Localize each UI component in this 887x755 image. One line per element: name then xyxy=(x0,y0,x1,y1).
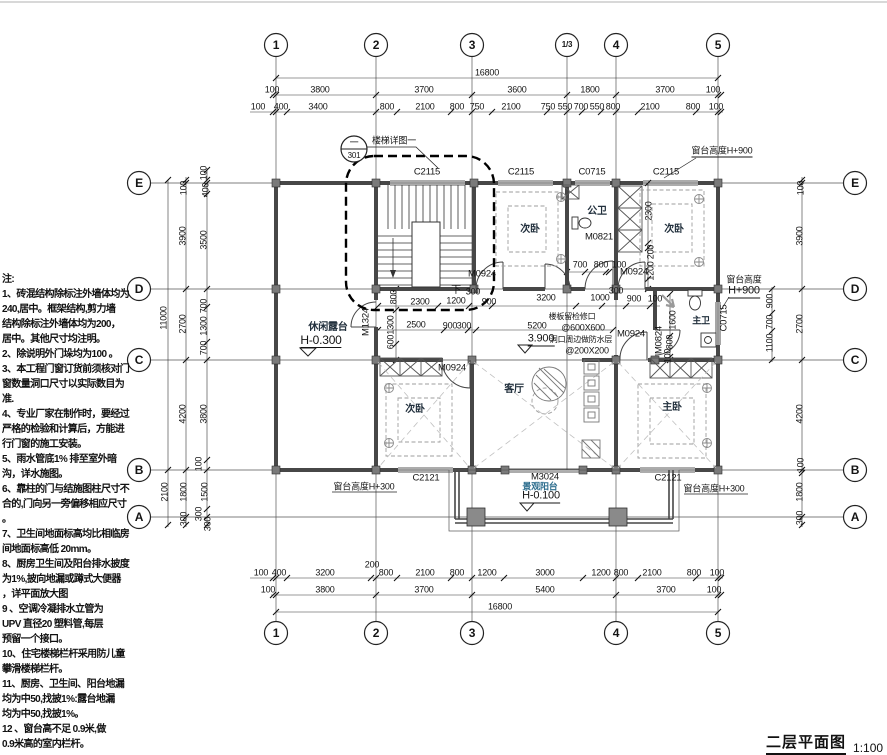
drawing-title-block: 二层平面图1:100 xyxy=(766,731,883,755)
walls xyxy=(274,181,720,472)
balcony xyxy=(449,470,679,531)
note-line: 严格的检验和计算后，方能进 xyxy=(2,422,162,437)
note-line: 5、雨水管底1% 排至室外暗 xyxy=(2,452,162,467)
note-line: 准. xyxy=(2,392,162,407)
note-line: 6、靠柱的门与结施图柱尺寸不 xyxy=(2,482,162,497)
note-line: 为1%,披向地漏或蹲式大便器 xyxy=(2,572,162,587)
drawing-scale: 1:100 xyxy=(853,741,883,755)
note-line: 均为中50,找披1%。 xyxy=(2,707,162,722)
note-line: 预留一个接口。 xyxy=(2,632,162,647)
note-line: 0.9米高的室内栏杆。 xyxy=(2,737,162,752)
note-line: 居中。其他尺寸均注明。 xyxy=(2,332,162,347)
note-line: 7、卫生间地面标高均比相临房 xyxy=(2,527,162,542)
note-line: 。 xyxy=(2,512,162,527)
staircase xyxy=(378,185,472,287)
note-line: 间地面标高低 20mm。 xyxy=(2,542,162,557)
living-furnishings xyxy=(532,360,600,458)
note-line: 行门窗的施工安装。 xyxy=(2,437,162,452)
axis-bubble-circles xyxy=(128,34,867,645)
note-line: 4、专业厂家在制作时，要经过 xyxy=(2,407,162,422)
note-line: ，详平面放大图 xyxy=(2,587,162,602)
grid-lines xyxy=(150,56,844,622)
note-line: 窗数量洞口尺寸以实际数目为 xyxy=(2,377,162,392)
shower-arrow xyxy=(662,295,674,307)
note-line: 9 、空调冷凝排水立管为 xyxy=(2,602,162,617)
note-line: 1、砖混结构除标注外墙体均为 xyxy=(2,287,162,302)
note-line: 注: xyxy=(2,272,162,287)
note-line: 结构除标注外墙体均为200， xyxy=(2,317,162,332)
note-line: 11、厨房、卫生间、阳台地漏 xyxy=(2,677,162,692)
drawing-title: 二层平面图 xyxy=(766,731,846,755)
note-line: 沟，详水施图。 xyxy=(2,467,162,482)
note-line: 12 、窗台高不足 0.9米,做 xyxy=(2,722,162,737)
note-line: 8、厨房卫生间及阳台排水披度 xyxy=(2,557,162,572)
level-markers xyxy=(300,345,534,511)
note-line: 10、住宅楼梯栏杆采用防儿童 xyxy=(2,647,162,662)
floor-plan-canvas: 1231/34512345EDCBAEDCBA 1680010038003700… xyxy=(0,0,887,755)
note-line: 2、除说明外门垛均为100 。 xyxy=(2,347,162,362)
note-line: 240,居中。框架结构,剪力墙 xyxy=(2,302,162,317)
note-line: 均为中50,找披1%:露台地漏 xyxy=(2,692,162,707)
bathroom-fixtures xyxy=(572,217,716,347)
note-line: 3、本工程门窗订货前须核对门 xyxy=(2,362,162,377)
note-line: UPV 直径20 塑料管,每层 xyxy=(2,617,162,632)
note-line: 合的,门向另一旁偏移相应尺寸 xyxy=(2,497,162,512)
general-notes: 注:1、砖混结构除标注外墙体均为240,居中。框架结构,剪力墙结构除标注外墙体均… xyxy=(2,272,162,752)
note-line: 攀滑楼梯栏杆。 xyxy=(2,662,162,677)
